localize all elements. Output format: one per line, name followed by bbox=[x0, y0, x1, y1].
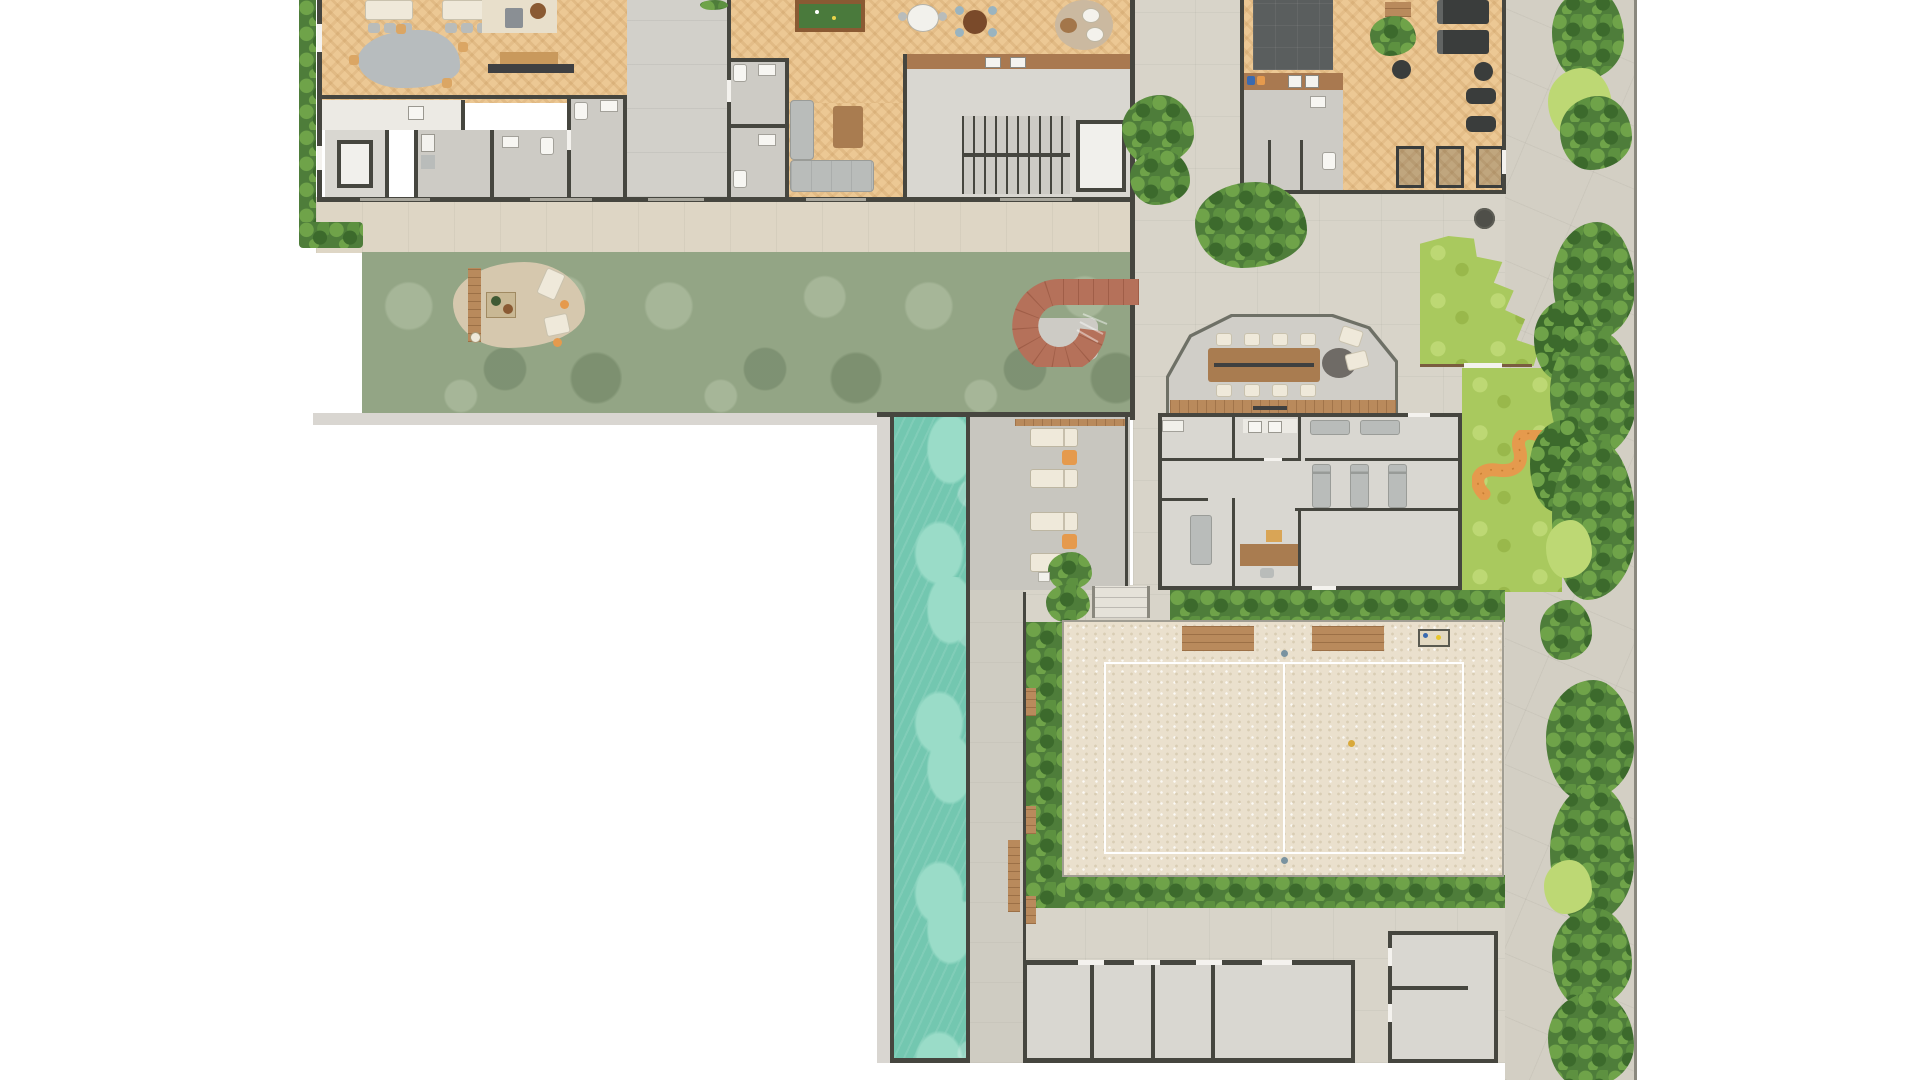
wc-west-sink bbox=[600, 100, 618, 112]
meeting-chair bbox=[1244, 384, 1260, 397]
spa-wall-v2 bbox=[1298, 415, 1301, 461]
sun-lounger bbox=[1030, 428, 1078, 447]
bar-sink-1 bbox=[985, 57, 1001, 68]
wc-east-1-sink bbox=[758, 64, 776, 76]
court-hedge-south bbox=[1065, 875, 1505, 908]
gym-bathroom-toilet bbox=[1322, 152, 1336, 170]
storage-west-wall bbox=[1023, 960, 1027, 1063]
gym-mat-zone bbox=[1253, 0, 1333, 70]
gym-east-door bbox=[1502, 150, 1506, 174]
utility-door bbox=[1388, 1004, 1392, 1022]
spa-north-door bbox=[1408, 413, 1430, 417]
spa-east-wall bbox=[1458, 413, 1462, 590]
spa-west-wall bbox=[1158, 413, 1162, 590]
corridor-west-wall bbox=[623, 95, 627, 197]
wc-east-east-wall bbox=[785, 58, 789, 197]
wc-west-door bbox=[567, 130, 571, 150]
gym-stool bbox=[1474, 62, 1493, 81]
deck-chair-white bbox=[1038, 572, 1050, 582]
wc-east-1-toilet bbox=[733, 64, 747, 82]
side-table-orange bbox=[1062, 534, 1077, 549]
rest-bed bbox=[1360, 420, 1400, 435]
gym-plant bbox=[1370, 16, 1416, 56]
spin-bike bbox=[1466, 116, 1496, 132]
side-table-orange bbox=[1062, 450, 1077, 465]
dining-table-1 bbox=[365, 0, 413, 20]
spa-wall-h4 bbox=[1158, 498, 1208, 501]
kitchen-counter-band bbox=[322, 100, 465, 130]
massage-bed bbox=[1388, 464, 1407, 508]
lap-pool bbox=[894, 417, 966, 1060]
billiard-table bbox=[795, 0, 865, 32]
sideboard-box bbox=[500, 52, 558, 64]
kitchen-cabinet bbox=[421, 155, 435, 169]
utility-structure-floor bbox=[1390, 933, 1496, 1061]
meeting-chair bbox=[1216, 384, 1232, 397]
meeting-chair bbox=[1300, 384, 1316, 397]
reading-desk bbox=[505, 8, 523, 28]
sun-lounger bbox=[1030, 512, 1078, 531]
weight-station bbox=[1436, 146, 1464, 188]
west-hedge-corner bbox=[299, 222, 363, 248]
wc-east-divider bbox=[727, 124, 789, 128]
court-game-table bbox=[1418, 629, 1450, 647]
meeting-chair bbox=[1244, 333, 1260, 346]
floor-plan-canvas bbox=[0, 0, 1920, 1080]
massage-bed bbox=[1312, 464, 1331, 508]
garden-walkway bbox=[316, 197, 1133, 253]
sideboard-shelf bbox=[488, 64, 574, 73]
treadmill bbox=[1437, 0, 1489, 24]
east-white-margin bbox=[1637, 0, 1920, 1080]
meeting-table-runner bbox=[1214, 363, 1314, 367]
patio-bar-counter bbox=[468, 268, 481, 342]
spiral-stair bbox=[995, 262, 1140, 367]
stair-core-west-wall bbox=[903, 54, 907, 200]
kitchen-sink bbox=[408, 106, 424, 120]
bar-sink-2 bbox=[1010, 57, 1026, 68]
storage-door bbox=[1196, 960, 1222, 965]
utility-inner-wall bbox=[1392, 986, 1468, 990]
storage-north-wall bbox=[1023, 960, 1355, 965]
office-box bbox=[1266, 530, 1282, 542]
round-table-brown bbox=[963, 10, 987, 34]
storage-door bbox=[1262, 960, 1292, 965]
west-window-gap bbox=[317, 146, 322, 170]
west-window-gap bbox=[317, 24, 322, 52]
spa-wall-v4 bbox=[1298, 508, 1301, 590]
blue-chair bbox=[988, 28, 997, 37]
patio-lantern bbox=[470, 332, 481, 343]
stair-flight-lower bbox=[962, 157, 1070, 194]
sofa-main bbox=[790, 160, 874, 192]
wc-east-2-sink bbox=[758, 134, 776, 146]
blue-chair bbox=[955, 28, 964, 37]
meeting-chair bbox=[1272, 333, 1288, 346]
stair-flight-upper bbox=[962, 116, 1070, 154]
gym-counter-item-blue bbox=[1247, 76, 1255, 85]
spa-wall-v1 bbox=[1232, 415, 1235, 461]
massage-bed bbox=[1350, 464, 1369, 508]
gym-west-wall bbox=[1240, 0, 1244, 192]
court-planter bbox=[1046, 584, 1090, 622]
pool-east-wall bbox=[966, 415, 970, 1063]
spa-shelf bbox=[1162, 420, 1184, 432]
kitchen-stove bbox=[421, 134, 435, 152]
spa-sink bbox=[1248, 421, 1262, 433]
court-bench bbox=[1026, 806, 1036, 834]
office-chair bbox=[1260, 568, 1274, 578]
spa-sink bbox=[1268, 421, 1282, 433]
bottom-white-margin bbox=[0, 1063, 1505, 1080]
corridor bbox=[627, 0, 727, 197]
court-center-line bbox=[1283, 662, 1285, 854]
rug-chair bbox=[458, 42, 468, 52]
spa-wall-v3 bbox=[1232, 498, 1235, 590]
south-glass-door bbox=[648, 198, 704, 201]
court-platform bbox=[1312, 626, 1384, 651]
coffee-table bbox=[833, 106, 863, 148]
blue-chair bbox=[988, 6, 997, 15]
blue-chair bbox=[955, 6, 964, 15]
pool-bench bbox=[1008, 840, 1020, 912]
service-divider bbox=[490, 130, 494, 197]
pool-west-wall bbox=[890, 415, 894, 1063]
west-hedge-strip bbox=[299, 0, 316, 232]
garden-border-strip bbox=[313, 413, 881, 425]
south-glass-door bbox=[530, 198, 592, 201]
utility-door bbox=[1388, 948, 1392, 966]
spa-door-h1 bbox=[1264, 458, 1282, 461]
storage-door bbox=[1134, 960, 1160, 965]
gym-bathroom-stub-wall bbox=[1268, 140, 1271, 190]
south-glass-door bbox=[806, 198, 866, 201]
dining-chairs-1 bbox=[368, 23, 380, 33]
sun-deck-lower bbox=[970, 590, 1023, 1063]
net-post bbox=[1281, 650, 1288, 657]
stair-divider bbox=[962, 153, 1070, 157]
pouf-brown bbox=[1060, 18, 1077, 33]
service-divider bbox=[385, 130, 389, 197]
east-hedge-blob bbox=[1540, 600, 1592, 660]
gym-counter-sink bbox=[1288, 75, 1302, 88]
gym-bathroom-floor bbox=[1243, 90, 1343, 190]
weight-station bbox=[1476, 146, 1504, 188]
gym-bench bbox=[1385, 2, 1411, 17]
court-bench bbox=[1026, 896, 1036, 924]
south-glass-door bbox=[1000, 198, 1072, 201]
storage-rooms-floor bbox=[1023, 962, 1355, 1060]
game-piece-yellow bbox=[1436, 635, 1441, 640]
treatment-table bbox=[1190, 515, 1212, 565]
stair-core-elevator bbox=[1076, 120, 1126, 192]
storage-divider bbox=[1151, 965, 1155, 1060]
deck-edge-strip bbox=[1015, 419, 1125, 426]
pouf-white bbox=[1086, 27, 1104, 42]
patio-stool-orange-2 bbox=[553, 338, 562, 347]
patio-tray bbox=[503, 304, 513, 314]
path-tree-circle bbox=[1474, 208, 1495, 229]
round-table-chair bbox=[938, 12, 947, 21]
lawn-gate-gap bbox=[1464, 363, 1502, 368]
court-bench bbox=[1026, 688, 1036, 716]
east-hedge-moss bbox=[1546, 520, 1592, 578]
gym-counter-item-orange bbox=[1257, 76, 1265, 85]
south-glass-door bbox=[360, 198, 430, 201]
rest-bed bbox=[1310, 420, 1350, 435]
service-counter-side-wall bbox=[461, 100, 465, 130]
east-hedge-blob bbox=[1548, 992, 1634, 1080]
wc-east-top-wall bbox=[727, 58, 789, 62]
sun-lounger bbox=[1030, 469, 1078, 488]
elevator-cab bbox=[337, 140, 373, 188]
reading-table bbox=[530, 3, 546, 19]
billiard-ball bbox=[815, 10, 819, 14]
spin-bike bbox=[1466, 88, 1496, 104]
round-table-chair bbox=[898, 12, 907, 21]
spa-wall-h3 bbox=[1295, 508, 1458, 511]
court-steps bbox=[1092, 586, 1150, 618]
rug-chair bbox=[442, 78, 452, 88]
corridor-door bbox=[727, 80, 731, 102]
wc-east-2-toilet bbox=[733, 170, 747, 188]
storage-divider bbox=[1090, 965, 1094, 1060]
gym-counter-sink bbox=[1305, 75, 1319, 88]
east-hedge-moss bbox=[1544, 860, 1592, 914]
pool-west-border-strip bbox=[877, 415, 891, 1064]
weight-station bbox=[1396, 146, 1424, 188]
bathroom-1-toilet bbox=[540, 137, 554, 155]
path-bush bbox=[1130, 150, 1190, 205]
net-post bbox=[1281, 857, 1288, 864]
utility-east-wall bbox=[1494, 931, 1498, 1063]
court-platform bbox=[1182, 626, 1254, 651]
patio-stool-orange bbox=[560, 300, 569, 309]
billiard-ball bbox=[832, 16, 836, 20]
storage-east-wall bbox=[1351, 960, 1355, 1063]
meeting-chair bbox=[1272, 384, 1288, 397]
gym-bathroom-sink bbox=[1310, 96, 1326, 108]
patio-plant-pot bbox=[491, 296, 501, 306]
deck-east-wall-upper bbox=[1125, 417, 1128, 590]
gym-bathroom-stub-wall bbox=[1300, 140, 1303, 190]
corridor-top-plant bbox=[700, 0, 728, 10]
pouf-white bbox=[1082, 8, 1100, 23]
bathroom-1-sink bbox=[502, 136, 519, 148]
office-desk bbox=[1240, 544, 1298, 566]
meeting-chair bbox=[1216, 333, 1232, 346]
treadmill bbox=[1437, 30, 1489, 54]
court-hedge-north bbox=[1170, 590, 1505, 622]
east-hedge-blob bbox=[1560, 96, 1632, 170]
path-bush-junction bbox=[1195, 182, 1307, 268]
wc-west-toilet bbox=[574, 102, 588, 120]
rug-chair bbox=[396, 24, 406, 34]
dining-chair bbox=[461, 23, 473, 33]
utility-north-wall bbox=[1388, 931, 1498, 935]
game-piece-blue bbox=[1423, 633, 1428, 638]
round-table-white bbox=[907, 4, 939, 32]
spa-wall-h2 bbox=[1305, 458, 1458, 461]
service-top-wall bbox=[320, 95, 627, 99]
dining-chair bbox=[445, 23, 457, 33]
gym-stool bbox=[1392, 60, 1411, 79]
storage-divider bbox=[1211, 965, 1215, 1060]
sofa-chaise bbox=[790, 100, 814, 160]
meeting-chair bbox=[1300, 333, 1316, 346]
rug-chair bbox=[349, 55, 359, 65]
beach-ball bbox=[1348, 740, 1355, 747]
deck-item bbox=[1253, 406, 1287, 410]
east-hedge-blob bbox=[1546, 680, 1634, 800]
service-divider bbox=[414, 130, 418, 197]
